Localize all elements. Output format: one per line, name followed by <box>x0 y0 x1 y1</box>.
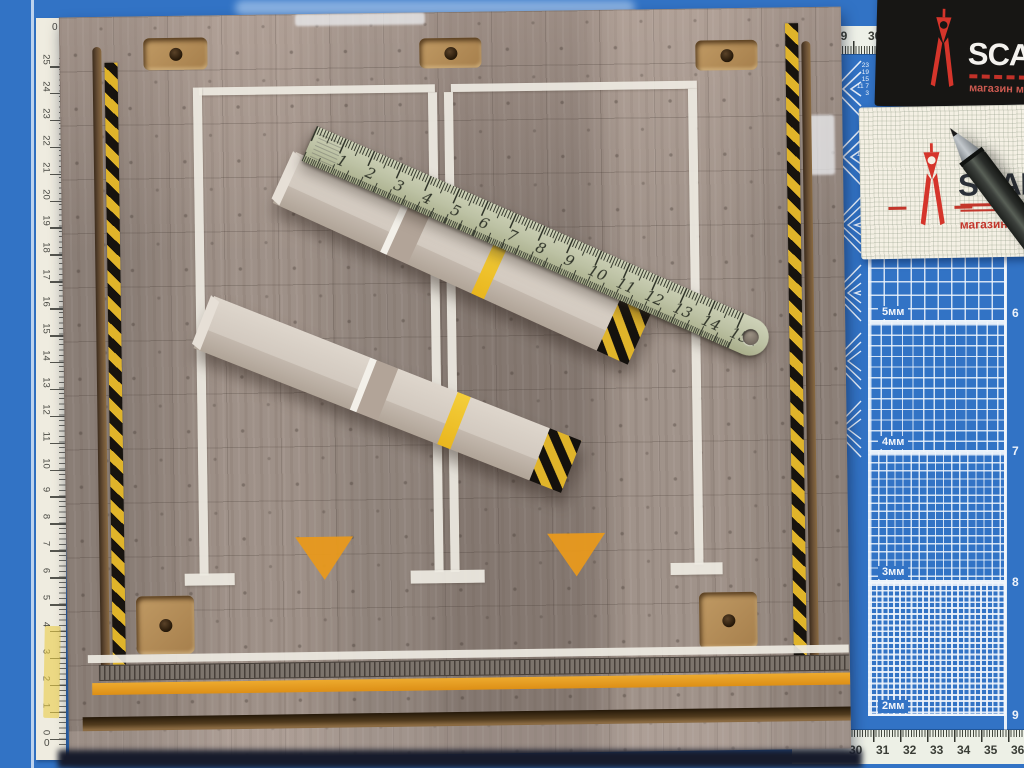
base-bottom-shadow <box>58 750 862 768</box>
mat-bottom-number: 35 <box>984 743 997 757</box>
screw-hole <box>169 47 182 60</box>
bay-foot-left <box>185 573 235 586</box>
paper-ruler-cm-tick <box>50 604 66 606</box>
paper-ruler-cm-tick <box>50 443 66 445</box>
mat-grid-2mm: 2мм <box>868 582 1006 716</box>
bay-foot-right <box>671 562 723 575</box>
yellow-tape <box>43 626 61 718</box>
mat-bottom-number: 31 <box>876 743 889 757</box>
paper-ruler-cm-tick <box>50 470 66 472</box>
brand-dash-underline <box>969 74 1024 80</box>
mat-right-number: 6 <box>1012 306 1019 320</box>
paper-ruler-cm-tick <box>50 496 66 498</box>
mat-bottom-number: 32 <box>903 743 916 757</box>
grid-label-2mm: 2мм <box>878 700 908 713</box>
mat-grid-4mm: 4мм <box>868 322 1006 452</box>
screw-recess <box>419 38 481 69</box>
screw-recess <box>143 37 207 70</box>
screw-hole <box>444 46 457 59</box>
compass-dash-left <box>888 207 906 210</box>
bay-foot-center <box>411 570 485 584</box>
orange-triangle-marking <box>295 536 354 580</box>
grid-label-4mm: 4мм <box>878 436 908 449</box>
screw-hole <box>159 618 172 631</box>
paint-chip <box>295 12 425 26</box>
mat-border-line <box>31 0 34 768</box>
paint-chip <box>808 115 835 175</box>
brand-subtitle: магазин ма <box>969 82 1024 96</box>
grid-label-5mm: 5мм <box>878 306 908 319</box>
mat-right-number: 9 <box>1012 708 1019 722</box>
mat-grid-3mm: 3мм <box>868 452 1006 582</box>
screw-recess <box>695 40 757 71</box>
grid-label-3mm: 3мм <box>878 566 908 579</box>
screw-recess <box>136 596 195 655</box>
mat-bottom-number: 33 <box>930 743 943 757</box>
compass-icon <box>923 7 963 96</box>
mat-right-number: 8 <box>1012 575 1019 589</box>
screw-hole <box>720 49 733 62</box>
diorama-base <box>59 7 851 760</box>
paper-ruler-cm-tick <box>50 523 66 525</box>
screw-hole <box>722 614 735 627</box>
paper-ruler-cm-tick <box>50 577 66 579</box>
paper-ruler-cm-tick <box>50 550 66 552</box>
paper-ruler-top-zero: 0 <box>52 22 58 33</box>
orange-triangle-marking <box>547 533 606 577</box>
compass-icon <box>911 140 953 237</box>
mat-grid-5mm: 5мм <box>868 252 1006 322</box>
brand-wordmark: SCAL <box>967 36 1024 74</box>
mat-bottom-number: 34 <box>957 743 970 757</box>
photo-scene: 2930 23 19 15 11 7 3 25 21 17 13 9 5 5мм <box>0 0 1024 768</box>
mat-right-number: 7 <box>1012 444 1019 458</box>
screw-recess <box>699 592 758 649</box>
angle-guide-numbers: 23 19 15 11 7 3 <box>856 62 869 97</box>
mat-bottom-number: 36 <box>1011 743 1024 757</box>
brand-card-black: SCAL магазин ма <box>875 0 1024 110</box>
paper-ruler-cm-tick <box>50 739 66 741</box>
